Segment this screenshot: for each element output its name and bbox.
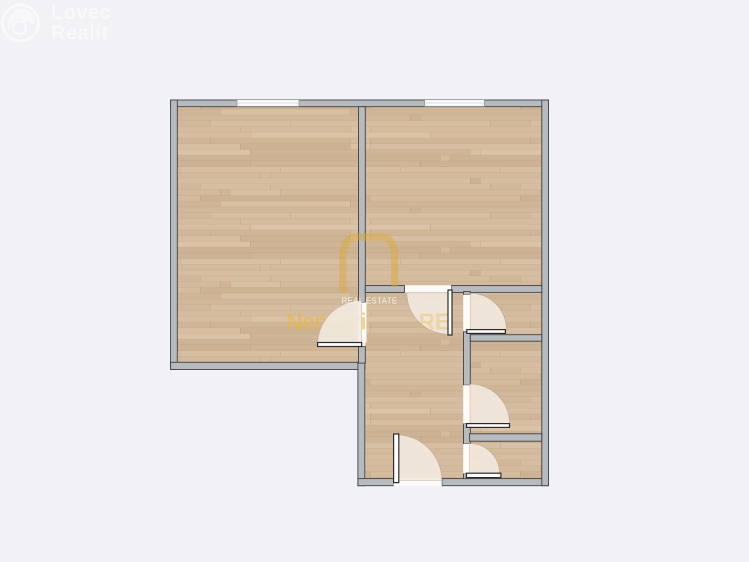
svg-text:Realit: Realit <box>51 23 108 45</box>
svg-text:Lovec: Lovec <box>51 2 111 24</box>
svg-text:REAL ESTATE: REAL ESTATE <box>341 297 397 306</box>
svg-text:RE: RE <box>419 309 450 335</box>
